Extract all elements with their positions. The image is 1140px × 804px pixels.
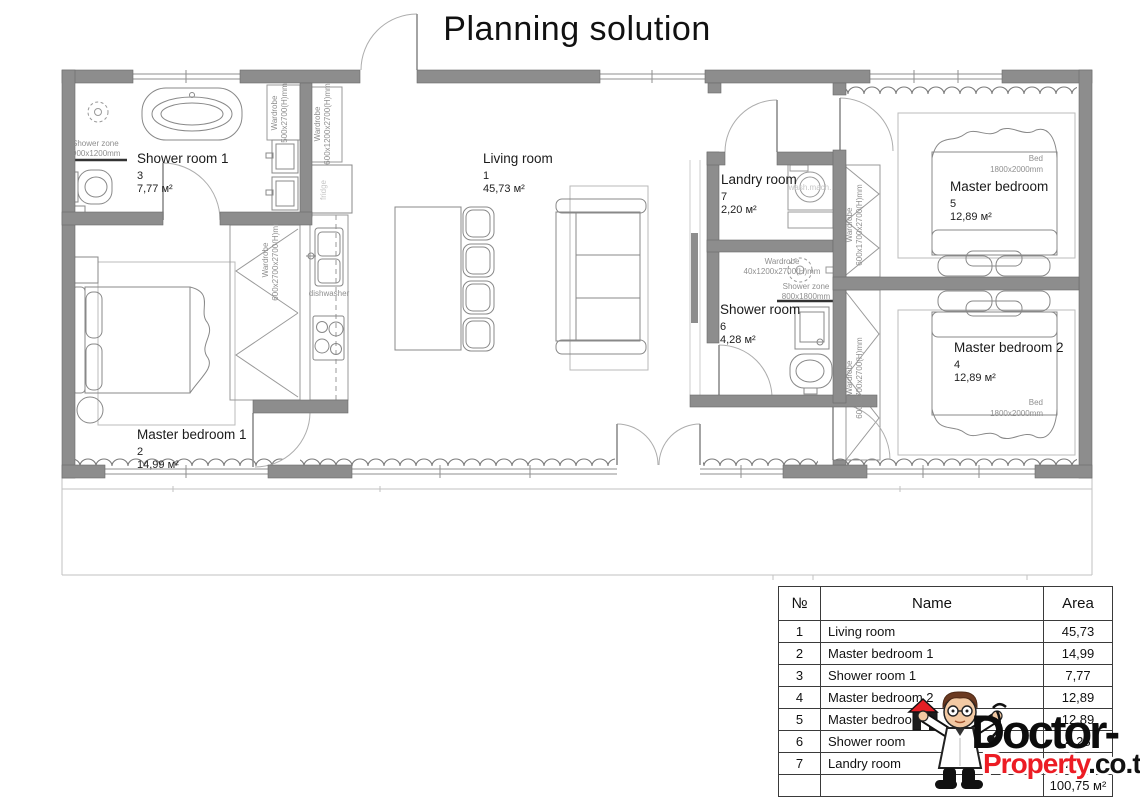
room-label-sr1: Shower room 1 <box>137 151 229 166</box>
room-num-mb2: 4 <box>954 359 960 371</box>
room-label-mb2: Master bedroom 2 <box>954 340 1064 355</box>
room-area-landry: 2,20 м² <box>721 204 757 216</box>
label-wardrobe-40-size: 40x1200x2700(H)mm <box>744 267 821 276</box>
label-fridge: fridge <box>319 179 328 200</box>
room-label-mb: Master bedroom <box>950 179 1048 194</box>
room-area-sr: 4,28 м² <box>720 334 756 346</box>
terrace-outline <box>62 478 1092 580</box>
room-label-landry: Landry room <box>721 172 797 187</box>
cell-num: 6 <box>779 731 821 753</box>
room-area-sr1: 7,77 м² <box>137 183 173 195</box>
room-area-mb1: 14,99 м² <box>137 459 179 471</box>
label-wardrobe-500: Wardrobe <box>270 95 279 130</box>
table-row: 3 Shower room 1 7,77 <box>779 665 1113 687</box>
label-bed-mb5-size: 1800x2000mm <box>990 165 1043 174</box>
page: Planning solution <box>0 0 1140 804</box>
logo-subtext: Property.co.th <box>983 750 1140 778</box>
label-shower-zone1-size: 900x1200mm <box>72 149 121 158</box>
label-wardrobe-k: Wardrobe <box>313 106 322 141</box>
walls <box>62 70 1092 478</box>
bed-mb1 <box>70 257 235 425</box>
bed-mb5 <box>898 113 1075 276</box>
room-num-sr1: 3 <box>137 170 143 182</box>
room-num-sr: 6 <box>720 321 726 333</box>
shower-head-icon <box>88 102 108 122</box>
floor-plan: Shower room 1 3 7,77 м² Living room 1 45… <box>0 0 1140 582</box>
room-num-living: 1 <box>483 170 489 182</box>
header-name: Name <box>821 587 1044 621</box>
cell-area: 45,73 <box>1044 621 1113 643</box>
label-wardrobe-ha-size: 600x1700x2700(H)mm <box>855 184 864 266</box>
room-label-sr: Shower room <box>720 302 800 317</box>
room-label-living: Living room <box>483 151 553 166</box>
label-wardrobe-ha: Wardrobe <box>845 207 854 242</box>
cell-name: Shower room 1 <box>821 665 1044 687</box>
label-wardrobe-500-size: 500x2700(H)mm <box>280 83 289 143</box>
label-shower-zone2: Shower zone <box>783 282 830 291</box>
cell-num: 5 <box>779 709 821 731</box>
label-wardrobe-mb1: Wardrobe <box>261 242 270 277</box>
label-washmach: wash.mach. <box>788 183 832 192</box>
dining-table <box>395 207 494 351</box>
cell-area: 14,99 <box>1044 643 1113 665</box>
table-header-row: № Name Area <box>779 587 1113 621</box>
table-row: 2 Master bedroom 1 14,99 <box>779 643 1113 665</box>
label-shower-zone1: Shower zone <box>72 139 119 148</box>
cell-num-empty <box>779 775 821 797</box>
header-area: Area <box>1044 587 1113 621</box>
label-shower-zone2-size: 800x1800mm <box>782 292 831 301</box>
label-wardrobe-hb-size: 600x1700x2700(H)mm <box>855 337 864 419</box>
label-bed-mb2: Bed <box>1029 398 1043 407</box>
cell-num: 7 <box>779 753 821 775</box>
logo-property-text: Property <box>983 748 1088 779</box>
cell-num: 2 <box>779 643 821 665</box>
label-dishwasher: dishwasher <box>309 289 350 298</box>
header-num: № <box>779 587 821 621</box>
doctor-property-logo: Doctor- Property.co.th <box>885 686 1140 800</box>
logo-domain-text: .co.th <box>1088 748 1140 779</box>
label-bed-mb5: Bed <box>1029 154 1043 163</box>
cell-area: 7,77 <box>1044 665 1113 687</box>
room-num-mb1: 2 <box>137 446 143 458</box>
label-wardrobe-40: Wardrobe <box>765 257 800 266</box>
room-area-living: 45,73 м² <box>483 183 525 195</box>
cell-num: 4 <box>779 687 821 709</box>
cell-name: Living room <box>821 621 1044 643</box>
cell-num: 3 <box>779 665 821 687</box>
label-wardrobe-hb: Wardrobe <box>845 360 854 395</box>
cell-num: 1 <box>779 621 821 643</box>
room-area-mb2: 12,89 м² <box>954 372 996 384</box>
room-num-landry: 7 <box>721 191 727 203</box>
label-wardrobe-k-size: 600x1200x2700(H)mm <box>323 83 332 165</box>
cell-name: Master bedroom 1 <box>821 643 1044 665</box>
room-num-mb: 5 <box>950 198 956 210</box>
room-label-mb1: Master bedroom 1 <box>137 427 247 442</box>
shower-room-fixtures <box>788 258 834 394</box>
sliding-door <box>690 160 700 395</box>
room-area-mb: 12,89 м² <box>950 211 992 223</box>
label-wardrobe-mb1-size: 600x2700x2700(H)mm <box>271 219 280 301</box>
table-row: 1 Living room 45,73 <box>779 621 1113 643</box>
label-bed-mb2-size: 1800x2000mm <box>990 409 1043 418</box>
sofa <box>556 186 648 370</box>
bathtub <box>142 88 242 140</box>
